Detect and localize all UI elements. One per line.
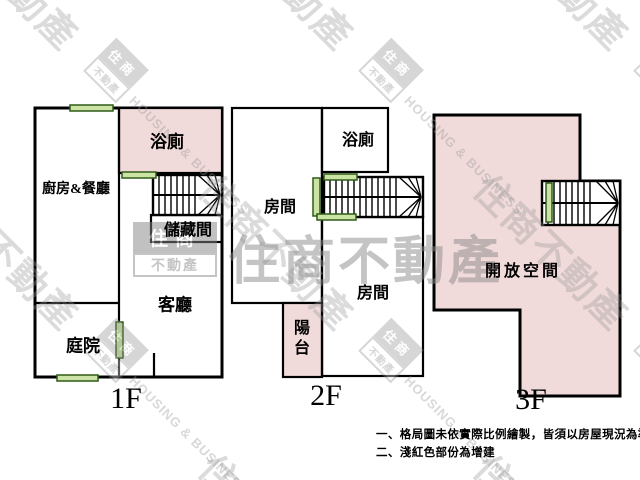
floor-label-2f: 2F bbox=[310, 379, 342, 413]
floorplan-1f bbox=[35, 108, 222, 377]
window-1f-landing bbox=[122, 172, 156, 178]
window-1f-bottom bbox=[57, 375, 98, 381]
room-label-living: 客廳 bbox=[158, 291, 192, 316]
window-3f-stair-left bbox=[546, 183, 552, 222]
note-line-1: 一、格局圖未依實際比例繪製，皆須以房屋現況為準 bbox=[376, 426, 640, 442]
floorplan-3f bbox=[434, 115, 620, 396]
room-label-room-2f-lower: 房間 bbox=[357, 279, 389, 303]
room-label-open-space: 開放空間 bbox=[485, 257, 561, 281]
floor-label-3f: 3F bbox=[515, 383, 547, 417]
floorplan-page: 住商不動產住商不動產HOUSING & BUSINESS住商不動產住商不動產HO… bbox=[0, 0, 640, 480]
room-label-room-2f-upper: 房間 bbox=[264, 193, 296, 217]
floor-label-1f: 1F bbox=[110, 382, 142, 416]
room-label-yard: 庭院 bbox=[66, 332, 100, 357]
note-line-2: 二、淺紅色部份為增建 bbox=[376, 444, 495, 460]
room-label-bath-2f: 浴廁 bbox=[342, 126, 374, 150]
window-1f-top bbox=[70, 105, 113, 111]
window-2f-stair-top bbox=[324, 174, 357, 180]
room-label-storage: 儲藏間 bbox=[164, 216, 212, 240]
window-2f-stair-left bbox=[313, 178, 320, 216]
room-label-bath-1f: 浴廁 bbox=[150, 128, 184, 153]
room-label-kitchen-dining: 廚房&餐廳 bbox=[42, 178, 110, 198]
window-2f-stair-bottom bbox=[317, 214, 356, 220]
room-label-balcony: 陽台 bbox=[293, 319, 312, 359]
floorplan-2f bbox=[232, 108, 423, 377]
window-1f-living bbox=[116, 322, 123, 358]
